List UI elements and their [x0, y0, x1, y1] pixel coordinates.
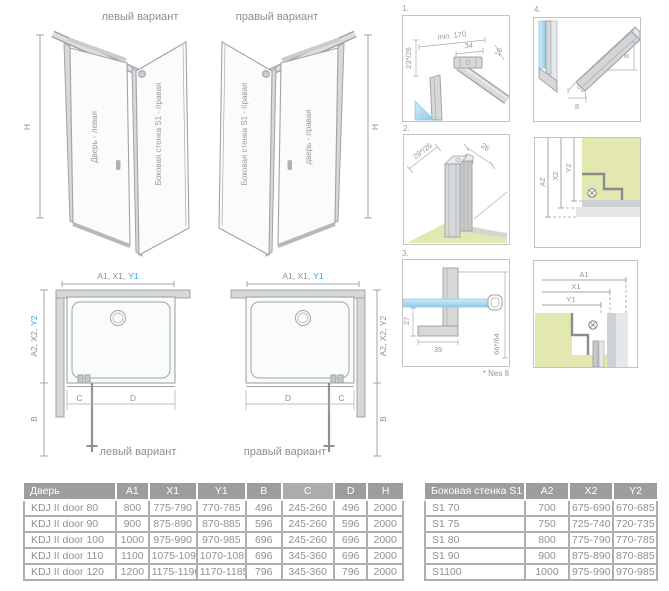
dimension-cell: 496 [334, 500, 368, 516]
dimension-cell: 770-785 [197, 500, 246, 516]
dimension-cell: 1175-1190 [149, 564, 197, 580]
detail-2-box: 28*/26 26 [403, 134, 510, 245]
detail-3-drawing: 27 39 66*/64 [403, 260, 509, 366]
dimension-cell: 2000 [367, 516, 403, 532]
dimension-cell: 775-790 [569, 532, 613, 548]
model-name-cell: S1 80 [425, 532, 525, 548]
side-dimension-line [40, 290, 48, 456]
top-dim-label: A1, X1,Y1 [282, 271, 324, 281]
glass-panel [539, 21, 546, 68]
top-dim-label: A1, X1,Y1 [97, 271, 139, 281]
dimension-cell: 245-260 [282, 516, 334, 532]
dim-label: Y1 [566, 295, 575, 304]
model-name-cell: S1 90 [425, 548, 525, 564]
detail-2-number: 2. [403, 124, 410, 133]
spec-sheet: левый вариант правый вариант Дверь - лев… [0, 0, 669, 591]
table-row: S1 90900875-890870-885 [425, 548, 657, 564]
column-header: C [282, 483, 334, 500]
dim-label: 16 [493, 46, 505, 57]
dimension-cell: 900 [116, 516, 148, 532]
column-header: Y2 [613, 483, 657, 500]
dimension-cell: 1100 [116, 548, 148, 564]
dimension-cell: 696 [334, 532, 368, 548]
table-header-row: Боковая стенка S1A2X2Y2 [425, 483, 657, 500]
dimension-cell: 245-260 [282, 500, 334, 516]
dimension-cell: 696 [246, 532, 282, 548]
table-row: S1 75750725-740720-735 [425, 516, 657, 532]
dim-label: Y2 [564, 163, 573, 172]
plan-left-caption: левый вариант [78, 446, 198, 458]
column-header: Дверь [24, 483, 116, 500]
door-glass [70, 48, 130, 245]
iso-diagram-right-variant: дверь - правая Боковая стенка S1 - права… [205, 22, 390, 262]
table-row: KDJ II door 80800775-790770-785496245-26… [24, 500, 403, 516]
dimension-cell: 796 [246, 564, 282, 580]
dimension-cell: 596 [334, 516, 368, 532]
side-dim-label: A2, X2, Y2 [378, 315, 388, 356]
shower-tray [67, 297, 175, 383]
table-row: S1 70700675-690670-685 [425, 500, 657, 516]
dimension-cell: 2000 [367, 564, 403, 580]
dim-label: A2 [538, 177, 547, 186]
hinge-block [85, 375, 90, 383]
column-header: Y1 [197, 483, 246, 500]
hinge-block [78, 375, 83, 383]
dim-label: 8 [575, 102, 579, 111]
dim-label: A1 [579, 270, 588, 279]
dimension-cell: 2000 [367, 548, 403, 564]
c-label: C [338, 393, 344, 403]
table-row: KDJ II door 11011001075-10901070-1085696… [24, 548, 403, 564]
bracket-foot [418, 326, 458, 336]
dimension-cell: 720-735 [613, 516, 657, 532]
cd-dimension-line [67, 390, 175, 410]
model-name-cell: S1 75 [425, 516, 525, 532]
dimension-cell: 1070-1085 [197, 548, 246, 564]
detail-side-wall-dims-box: A2 X2 Y2 [534, 137, 641, 248]
table-row: S11001000975-990970-985 [425, 564, 657, 580]
dim-label: X2 [551, 171, 560, 180]
iso-diagram-left-variant: Дверь - левая Боковая стенка S1 - правая… [18, 22, 203, 262]
model-name-cell: KDJ II door 110 [24, 548, 116, 564]
dimension-cell: 800 [525, 532, 569, 548]
side-wall-label: Боковая стенка S1 - правая [240, 83, 249, 186]
height-dimension-line [36, 35, 44, 218]
dimension-cell: 770-785 [613, 532, 657, 548]
side-wall-dimensions-table: Боковая стенка S1A2X2Y2 S1 70700675-6906… [424, 483, 658, 581]
side-wall-label: Боковая стенка S1 - правая [154, 83, 163, 186]
door-label: Дверь - левая [90, 111, 99, 163]
dimension-cell: 1000 [116, 532, 148, 548]
plan-right-caption: правый вариант [225, 446, 345, 458]
detail-3-box: 27 39 66*/64 [402, 259, 510, 367]
top-dimension-line [62, 281, 174, 287]
dimension-cell: 875-890 [569, 548, 613, 564]
table-header-row: ДверьA1X1Y1BCDH [24, 483, 403, 500]
dim-label: 23*/26 [404, 47, 413, 69]
detail-4-drawing: 8 8 [534, 18, 640, 121]
column-header: A2 [525, 483, 569, 500]
corner-profile-front [445, 164, 460, 237]
wall-bracket [443, 268, 458, 329]
detail-side-wall-dims: A2 X2 Y2 [535, 138, 640, 247]
b-label: B [29, 416, 39, 422]
column-header: Боковая стенка S1 [425, 483, 525, 500]
dimension-cell: 970-985 [613, 564, 657, 580]
dimension-cell: 775-790 [149, 500, 197, 516]
door-handle [116, 160, 121, 170]
model-name-cell: KDJ II door 120 [24, 564, 116, 580]
c-label: C [76, 393, 82, 403]
height-label: H [370, 124, 380, 130]
dimension-cell: 345-360 [282, 564, 334, 580]
detail-1-box: 23*/26 min. 170 34 16 [402, 15, 510, 122]
dimension-cell: 345-360 [282, 548, 334, 564]
mirrored-geometry [231, 281, 381, 456]
dimension-cell: 2000 [367, 500, 403, 516]
dim-label: 27 [403, 317, 411, 325]
height-label: H [22, 124, 32, 130]
detail-3-number: 3. [402, 249, 409, 258]
bar-clamp [454, 57, 482, 68]
dimension-cell: 870-885 [197, 516, 246, 532]
dimension-cell: 1000 [525, 564, 569, 580]
bar-connector [139, 71, 146, 78]
dimension-cell: 675-690 [569, 500, 613, 516]
wall-profile [546, 21, 551, 74]
dimension-cell: 496 [246, 500, 282, 516]
d-label: D [130, 393, 136, 403]
dim-label: 8 [622, 54, 631, 58]
dimension-cell: 696 [246, 548, 282, 564]
detail-door-dims-box: A1 X1 Y1 [533, 260, 638, 368]
door-dimensions-table: ДверьA1X1Y1BCDH KDJ II door 80800775-790… [23, 483, 404, 581]
dimension-cell: 796 [334, 564, 368, 580]
plan-view-left-variant: A1, X1,Y1 A2, X2,Y2 B C D [28, 270, 213, 462]
stabilizer-profile [576, 31, 640, 91]
model-name-cell: KDJ II door 100 [24, 532, 116, 548]
table-row: KDJ II door 1001000975-990970-985696245-… [24, 532, 403, 548]
glass-panel [403, 299, 488, 307]
dimension-cell: 700 [525, 500, 569, 516]
footnote: * Nes 8 [454, 369, 509, 378]
column-header: X1 [149, 483, 197, 500]
dimension-cell: 1075-1090 [149, 548, 197, 564]
table-row: KDJ II door 90900875-890870-885596245-26… [24, 516, 403, 532]
bar-knob [488, 295, 502, 310]
detail-1-drawing: 23*/26 min. 170 34 16 [403, 16, 509, 121]
plan-view-right-variant: A1, X1,Y1 A2, X2, Y2 B C D [228, 270, 413, 462]
detail-2-drawing: 28*/26 26 [404, 135, 509, 244]
dim-label: X1 [571, 282, 580, 291]
detail-1-number: 1. [402, 4, 409, 13]
tray-edge [582, 200, 640, 207]
dim-label: 34 [464, 41, 473, 51]
dim-label: 26 [479, 141, 491, 153]
dim-label: min. 170 [437, 30, 467, 42]
dim-label: 39 [434, 345, 442, 354]
column-header: H [367, 483, 403, 500]
dimension-cell: 875-890 [149, 516, 197, 532]
dimension-cell: 870-885 [613, 548, 657, 564]
dimension-cell: 970-985 [197, 532, 246, 548]
dimension-cell: 696 [334, 548, 368, 564]
b-label: B [378, 416, 388, 422]
dimension-cell: 725-740 [569, 516, 613, 532]
column-header: B [246, 483, 282, 500]
d-label: D [285, 393, 291, 403]
tray-edge [607, 313, 616, 367]
column-header: A1 [116, 483, 148, 500]
side-dim-label: A2, X2,Y2 [29, 315, 39, 357]
detail-door-dims: A1 X1 Y1 [534, 261, 637, 367]
dimension-cell: 750 [525, 516, 569, 532]
model-name-cell: KDJ II door 90 [24, 516, 116, 532]
model-name-cell: KDJ II door 80 [24, 500, 116, 516]
wall-left [56, 298, 64, 417]
column-header: D [334, 483, 368, 500]
model-name-cell: S1 70 [425, 500, 525, 516]
dimension-cell: 2000 [367, 532, 403, 548]
dimension-cell: 1170-1185 [197, 564, 246, 580]
table-row: S1 80800775-790770-785 [425, 532, 657, 548]
dimension-cell: 596 [246, 516, 282, 532]
dimension-cell: 975-990 [569, 564, 613, 580]
door-label: дверь - правая [304, 109, 313, 164]
dimension-cell: 900 [525, 548, 569, 564]
detail-4-box: 8 8 [533, 17, 641, 122]
door-profile [593, 341, 598, 367]
dimension-cell: 245-260 [282, 532, 334, 548]
dimension-cell: 670-685 [613, 500, 657, 516]
dimension-cell: 800 [116, 500, 148, 516]
corner-profile-back [460, 161, 472, 231]
table-row: KDJ II door 12012001175-11901170-1185796… [24, 564, 403, 580]
dim-label: 66*/64 [492, 333, 501, 355]
detail-4-number: 4. [534, 5, 541, 14]
column-header: X2 [569, 483, 613, 500]
dimension-cell: 975-990 [149, 532, 197, 548]
model-name-cell: S1100 [425, 564, 525, 580]
dimension-cell: 1200 [116, 564, 148, 580]
